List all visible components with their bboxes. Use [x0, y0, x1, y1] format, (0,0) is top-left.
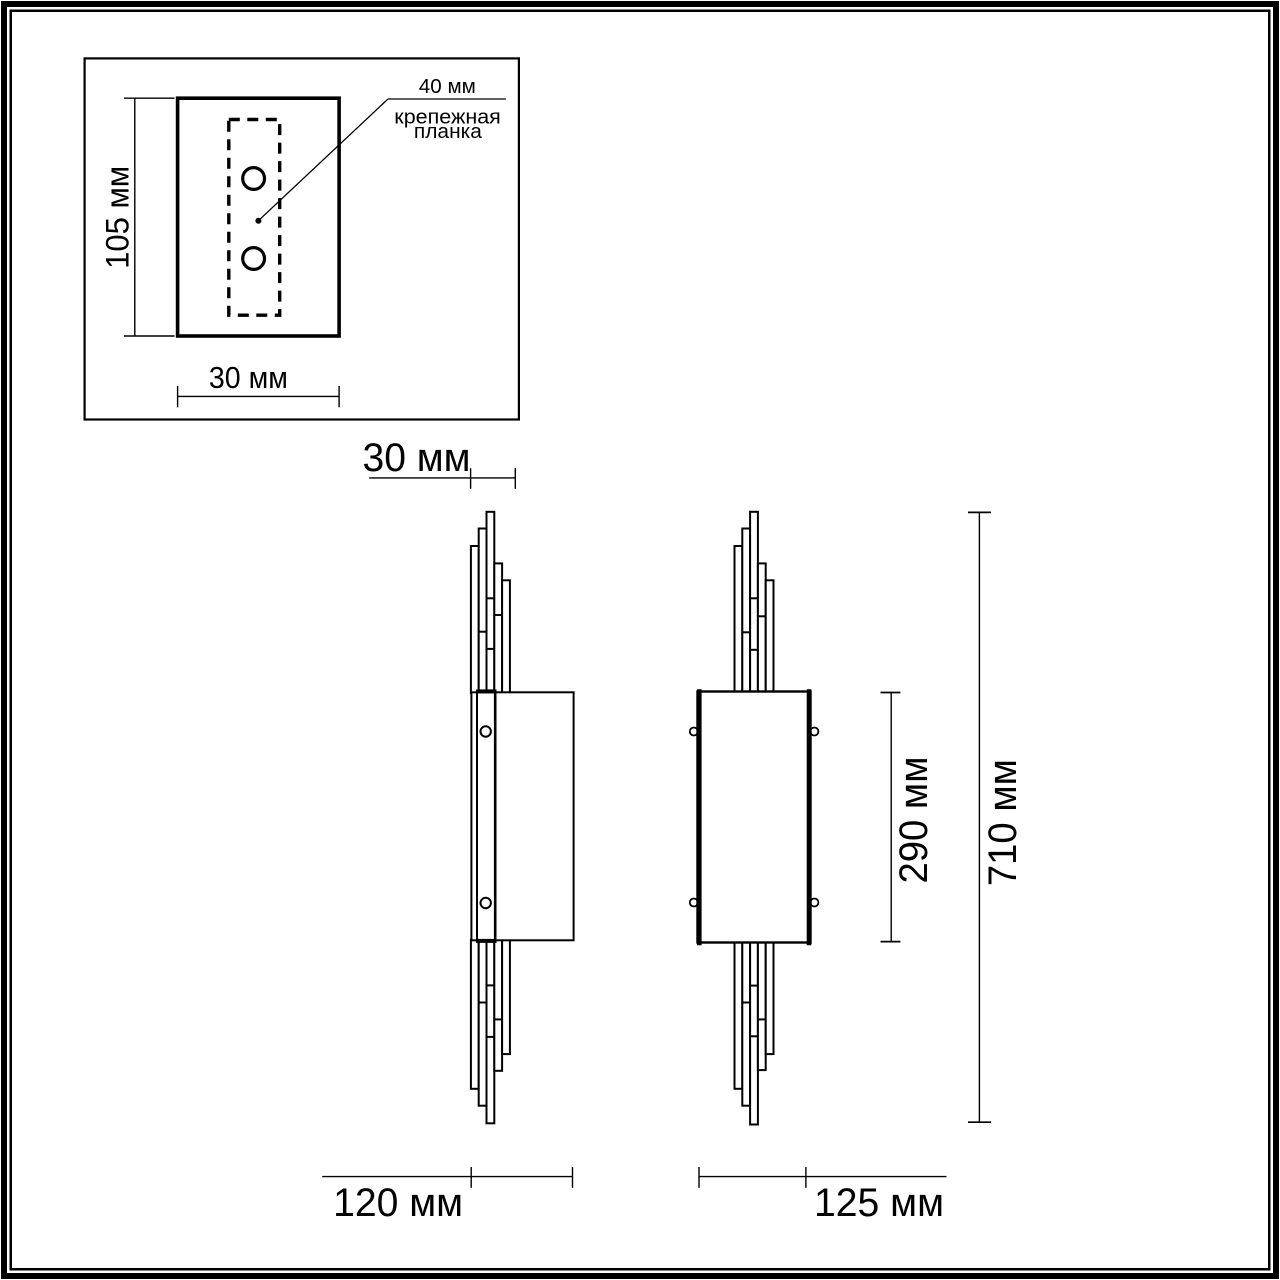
svg-text:40 мм: 40 мм: [419, 76, 476, 98]
svg-text:125 мм: 125 мм: [814, 1181, 944, 1225]
svg-text:30 мм: 30 мм: [209, 360, 288, 395]
svg-text:105 мм: 105 мм: [99, 166, 135, 269]
svg-text:290 мм: 290 мм: [892, 757, 936, 884]
svg-text:30 мм: 30 мм: [363, 436, 471, 480]
svg-text:710 мм: 710 мм: [981, 759, 1025, 886]
svg-text:планка: планка: [414, 121, 483, 143]
svg-text:120 мм: 120 мм: [333, 1181, 463, 1225]
